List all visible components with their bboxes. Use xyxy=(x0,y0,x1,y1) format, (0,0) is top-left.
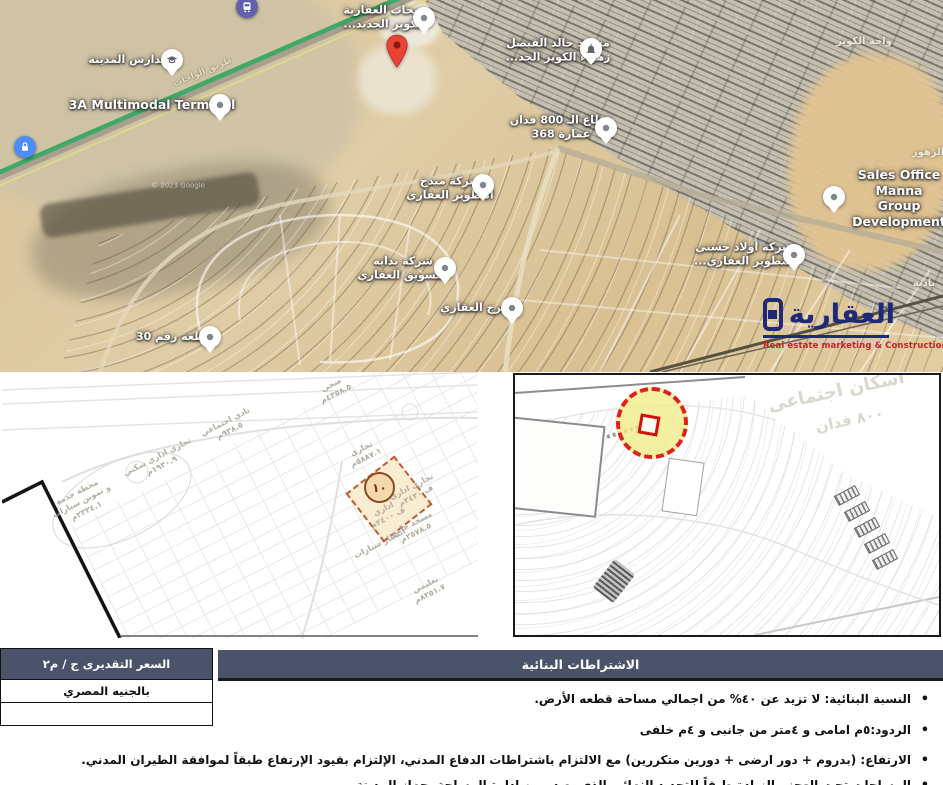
plot-number-badge: ١٠ xyxy=(364,472,395,503)
midg-company-pin[interactable] xyxy=(472,174,494,196)
graduation-cap-icon xyxy=(165,53,179,67)
spec-bullet-item: •المساحات تحت العجز والزيادة طبقاً للتحد… xyxy=(0,778,943,785)
dot-icon xyxy=(827,190,841,204)
sector-800-pin[interactable] xyxy=(595,117,617,139)
bullet-dot: • xyxy=(921,692,929,707)
bedaya-company-pin[interactable] xyxy=(434,257,456,279)
plan-small-block xyxy=(661,458,704,516)
logo-english-tagline: Real estate marketing & Construction xyxy=(763,341,895,351)
dot-icon xyxy=(476,178,490,192)
plan-large-block xyxy=(513,416,606,518)
satellite-map: مدارس المدينة3A Multimodal Terminalسحاب … xyxy=(0,0,943,372)
bullet-dot: • xyxy=(921,753,929,768)
spec-bullet-item: •الارتفاع: (بدروم + دور ارضى + دورين متك… xyxy=(0,753,943,771)
mosque-pin[interactable] xyxy=(580,38,602,60)
specifications-table: الاشتراطات البنائية السعر التقديرى ج / م… xyxy=(0,648,943,785)
spec-bullet-item: •الردود:٥م امامى و ٤متر من جانبى و ٤م خل… xyxy=(0,723,943,741)
lock-icon xyxy=(18,140,32,154)
logo-arabic-name: العقارية xyxy=(789,301,895,328)
site-plan-detail: ١٠ صحي ٤٣٥٨.٥منادي اجتماعي ٩٣٨.٥متجاري ا… xyxy=(2,372,478,638)
spec-bullet-text: الردود:٥م امامى و ٤متر من جانبى و ٤م خلف… xyxy=(6,723,911,737)
spec-bullet-text: الارتفاع: (بدروم + دور ارضى + دورين متكر… xyxy=(6,753,911,767)
square-logo-icon xyxy=(763,298,783,331)
city-schools-pin[interactable] xyxy=(161,49,183,71)
sales-office-pin[interactable] xyxy=(823,186,845,208)
highlight-square-marker xyxy=(637,413,660,436)
dot-icon xyxy=(213,98,227,112)
dot-icon xyxy=(417,11,431,25)
dot-icon xyxy=(203,330,217,344)
destination-marker[interactable] xyxy=(385,34,409,68)
borg-company-pin[interactable] xyxy=(501,297,523,319)
red-marker-icon xyxy=(385,34,409,68)
sahab-realestate-pin[interactable] xyxy=(413,7,435,29)
mosque-icon xyxy=(584,42,598,56)
dot-icon xyxy=(438,261,452,275)
brochure-page: مدارس المدينة3A Multimodal Terminalسحاب … xyxy=(0,0,943,785)
spec-bullet-text: المساحات تحت العجز والزيادة طبقاً للتحدي… xyxy=(6,778,911,785)
dot-icon xyxy=(505,301,519,315)
master-plan: اسكان اجتماعى ٨٠٠ فدان xyxy=(513,373,941,637)
specs-bullet-list: •النسبة البنائية: لا تزيد عن ٤٠% من اجما… xyxy=(0,648,943,785)
spec-bullet-item: •النسبة البنائية: لا تزيد عن ٤٠% من اجما… xyxy=(0,692,943,710)
bullet-dot: • xyxy=(921,778,929,785)
dot-icon xyxy=(599,121,613,135)
terminal-pin[interactable] xyxy=(209,94,231,116)
bullet-dot: • xyxy=(921,723,929,738)
hosny-company-pin[interactable] xyxy=(783,244,805,266)
dot-icon xyxy=(787,248,801,262)
logo-divider xyxy=(763,335,889,338)
spec-bullet-text: النسبة البنائية: لا تزيد عن ٤٠% من اجمال… xyxy=(6,692,911,706)
lock-pin[interactable] xyxy=(14,136,36,158)
company-logo: العقارية Real estate marketing & Constru… xyxy=(763,298,895,351)
bus-icon xyxy=(240,0,254,14)
plot-30-pin[interactable] xyxy=(199,326,221,348)
